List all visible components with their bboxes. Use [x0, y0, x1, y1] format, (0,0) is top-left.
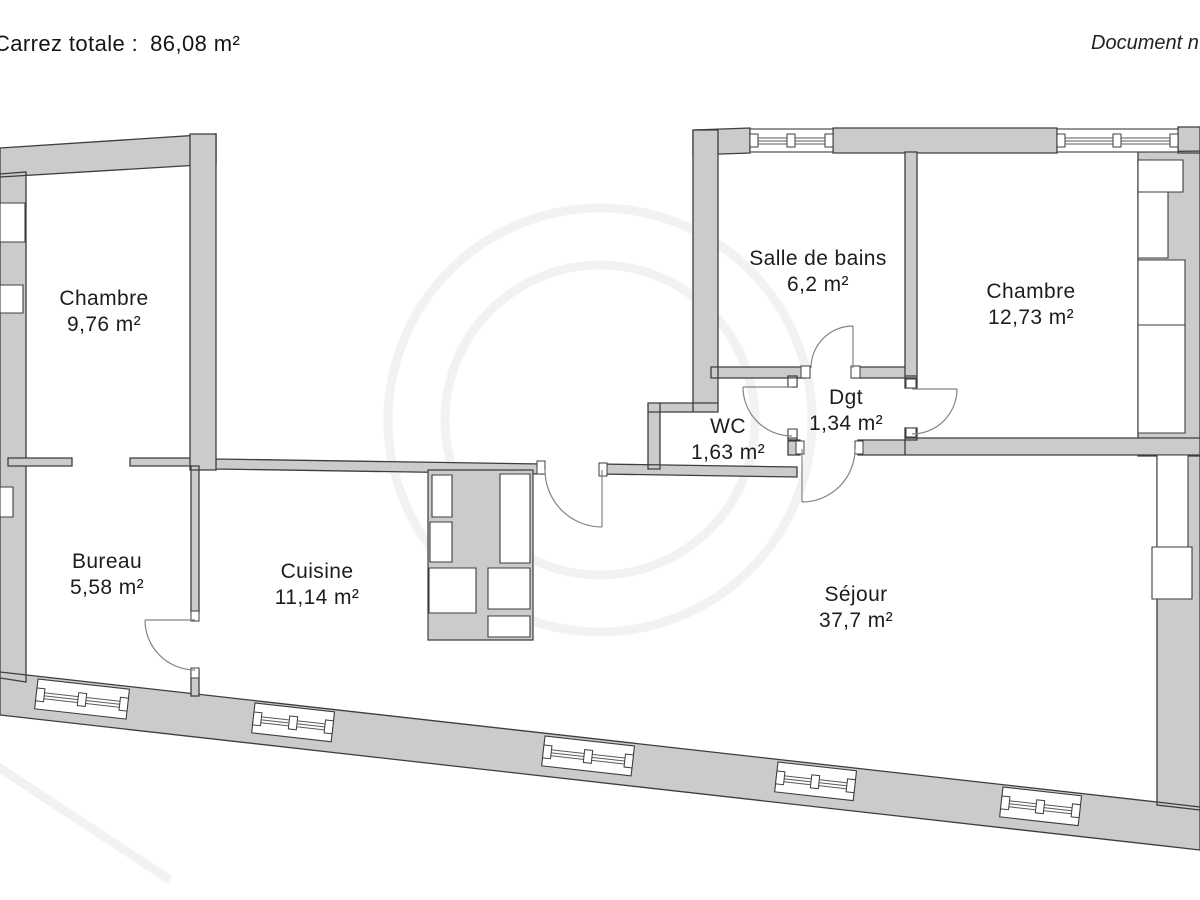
room-area: 1,34 m² [794, 411, 898, 437]
room-name: Chambre [14, 286, 194, 312]
room-name: Séjour [766, 582, 946, 608]
room-name: Bureau [17, 549, 197, 575]
room-label-wc: WC 1,63 m² [676, 414, 780, 466]
floor-plan-drawing [0, 0, 1200, 900]
document-note: Document n [1091, 32, 1200, 55]
floor-plan-page: { "header": { "area_label": "Carrez tota… [0, 0, 1200, 900]
room-label-degagement: Dgt 1,34 m² [794, 385, 898, 437]
wall-niches [0, 160, 1192, 599]
room-label-cuisine: Cuisine 11,14 m² [227, 559, 407, 611]
room-label-bureau: Bureau 5,58 m² [17, 549, 197, 601]
door-swing-icon [145, 620, 195, 670]
room-name: WC [676, 414, 780, 440]
room-area: 5,58 m² [17, 575, 197, 601]
room-label-chambre1: Chambre 9,76 m² [14, 286, 194, 338]
room-area: 11,14 m² [227, 585, 407, 611]
room-label-chambre2: Chambre 12,73 m² [941, 279, 1121, 331]
surface-total-label: Carrez totale :86,08 m² [0, 31, 240, 57]
door-swing-icon [811, 326, 853, 368]
surface-value: 86,08 m² [138, 31, 240, 56]
window-icon [750, 129, 833, 152]
room-name: Salle de bains [728, 246, 908, 272]
room-name: Chambre [941, 279, 1121, 305]
room-name: Cuisine [227, 559, 407, 585]
duct-shaft [428, 470, 533, 640]
door-swing-icon [545, 470, 602, 527]
room-label-salle-de-bains: Salle de bains 6,2 m² [728, 246, 908, 298]
room-label-sejour: Séjour 37,7 m² [766, 582, 946, 634]
room-area: 6,2 m² [728, 272, 908, 298]
room-area: 37,7 m² [766, 608, 946, 634]
room-area: 9,76 m² [14, 312, 194, 338]
outer-walls [0, 127, 1200, 850]
surface-label: Carrez totale : [0, 31, 138, 56]
room-area: 12,73 m² [941, 305, 1121, 331]
door-swing-icon [912, 389, 957, 434]
window-icon [1057, 129, 1178, 152]
interior-walls [8, 130, 1200, 696]
room-name: Dgt [794, 385, 898, 411]
room-area: 1,63 m² [676, 440, 780, 466]
